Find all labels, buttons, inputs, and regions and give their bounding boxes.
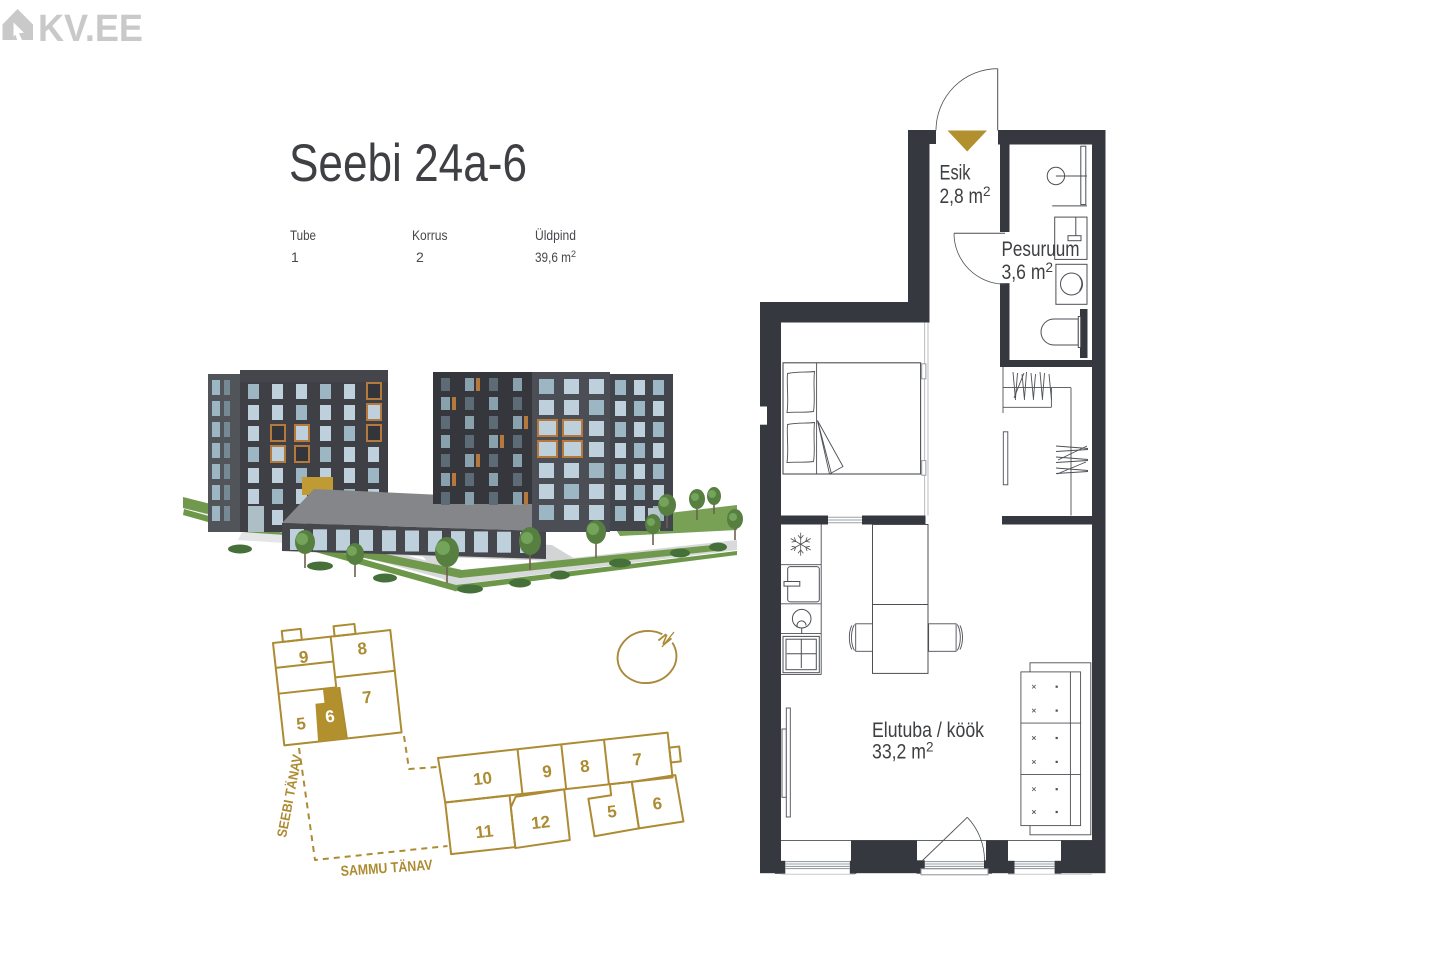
svg-text:Pesuruum: Pesuruum xyxy=(1002,238,1080,261)
svg-text:33,2 m2: 33,2 m2 xyxy=(872,740,934,764)
svg-text:KV.EE: KV.EE xyxy=(38,8,143,50)
svg-text:9: 9 xyxy=(298,647,309,667)
svg-text:5: 5 xyxy=(606,802,617,822)
svg-text:8: 8 xyxy=(356,639,367,659)
svg-text:7: 7 xyxy=(361,688,372,708)
svg-text:2,8 m2: 2,8 m2 xyxy=(940,184,991,208)
svg-text:39,6 m2: 39,6 m2 xyxy=(535,249,576,265)
svg-text:3,6 m2: 3,6 m2 xyxy=(1002,260,1054,284)
svg-text:10: 10 xyxy=(472,768,493,789)
svg-text:SAMMU TÄNAV: SAMMU TÄNAV xyxy=(340,857,433,880)
svg-text:SEEBI TÄNAV: SEEBI TÄNAV xyxy=(274,753,305,838)
svg-text:Seebi 24a-6: Seebi 24a-6 xyxy=(289,134,527,193)
svg-text:5: 5 xyxy=(295,714,306,734)
svg-text:Üldpind: Üldpind xyxy=(535,228,576,243)
svg-text:Esik: Esik xyxy=(940,162,971,185)
svg-text:1: 1 xyxy=(291,249,299,265)
svg-text:6: 6 xyxy=(652,794,663,814)
svg-text:8: 8 xyxy=(579,756,590,776)
svg-text:Korrus: Korrus xyxy=(412,228,448,243)
svg-text:7: 7 xyxy=(632,750,643,770)
svg-text:12: 12 xyxy=(530,812,551,833)
svg-text:Tube: Tube xyxy=(290,228,316,243)
svg-text:11: 11 xyxy=(474,821,494,842)
svg-text:2: 2 xyxy=(416,249,424,265)
svg-text:9: 9 xyxy=(541,762,552,782)
